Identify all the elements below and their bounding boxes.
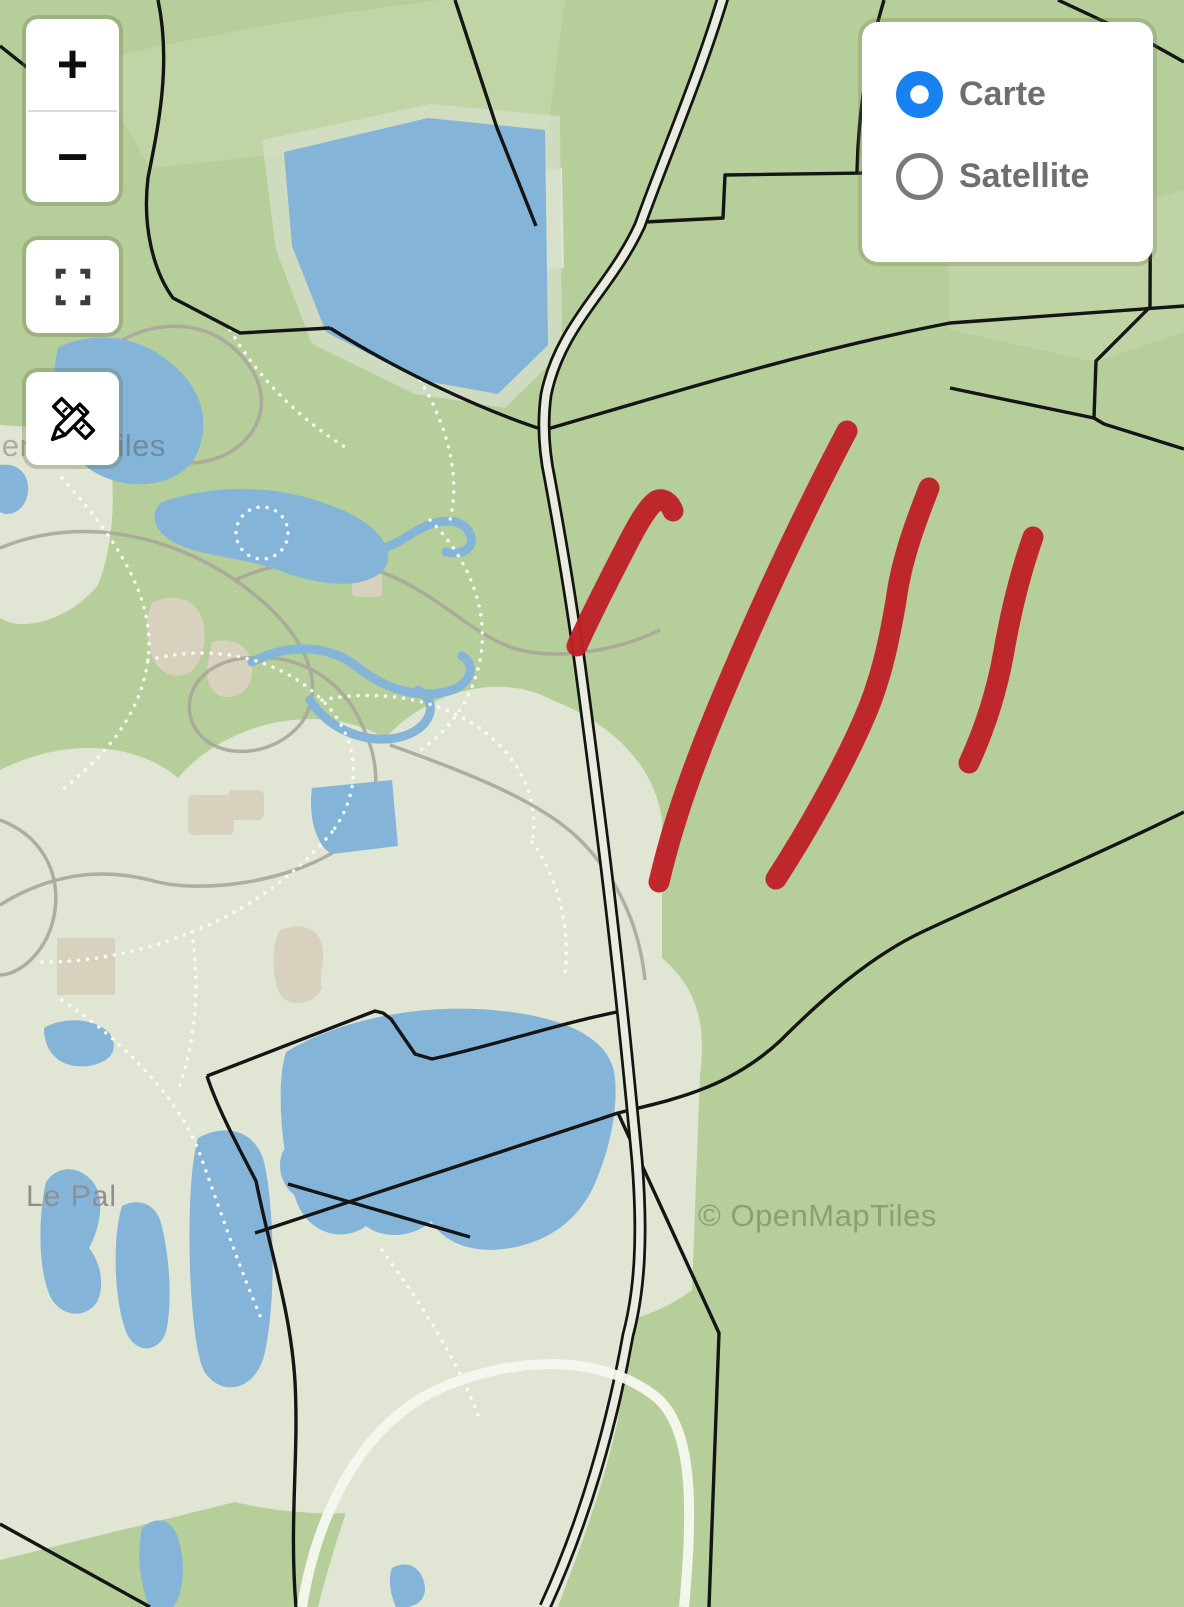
layer-option-satellite-label: Satellite (959, 157, 1089, 196)
draw-tool-button[interactable] (26, 372, 119, 465)
zoom-in-button[interactable]: + (26, 19, 119, 110)
radio-unselected-icon[interactable] (896, 153, 943, 200)
layer-option-satellite[interactable]: Satellite (896, 152, 1153, 200)
pencil-ruler-icon (48, 394, 98, 444)
layer-option-carte-label: Carte (959, 75, 1046, 114)
fullscreen-button[interactable] (26, 240, 119, 333)
zoom-control: + − (26, 19, 119, 202)
layer-option-carte[interactable]: Carte (896, 70, 1153, 118)
radio-selected-icon[interactable] (896, 71, 943, 118)
place-label-le-pal: Le Pal (26, 1180, 117, 1214)
zoom-out-button[interactable]: − (26, 112, 119, 203)
fullscreen-icon (50, 264, 96, 310)
map-attribution: © OpenMapTiles (698, 1198, 937, 1234)
map-viewport: © OpenMapTiles Le Pal © OpenMapTiles + −… (0, 0, 1184, 1607)
layer-switcher: Carte Satellite (862, 22, 1153, 262)
